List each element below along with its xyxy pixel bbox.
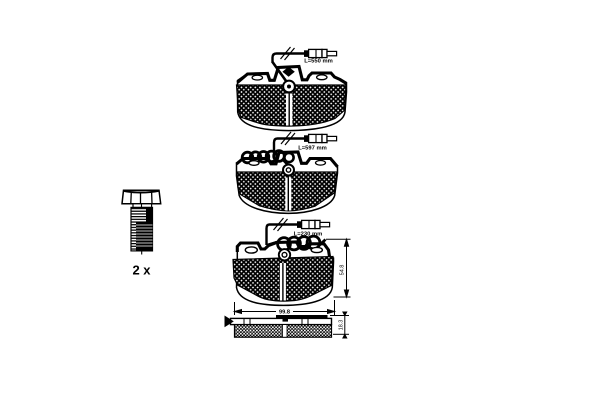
svg-text:2 x: 2 x bbox=[132, 263, 151, 278]
svg-text:54.8: 54.8 bbox=[340, 265, 346, 276]
svg-text:L=550 mm: L=550 mm bbox=[304, 59, 333, 65]
svg-text:18.3: 18.3 bbox=[338, 320, 344, 331]
svg-text:99.8: 99.8 bbox=[279, 310, 290, 316]
svg-text:L=597 mm: L=597 mm bbox=[298, 146, 327, 152]
